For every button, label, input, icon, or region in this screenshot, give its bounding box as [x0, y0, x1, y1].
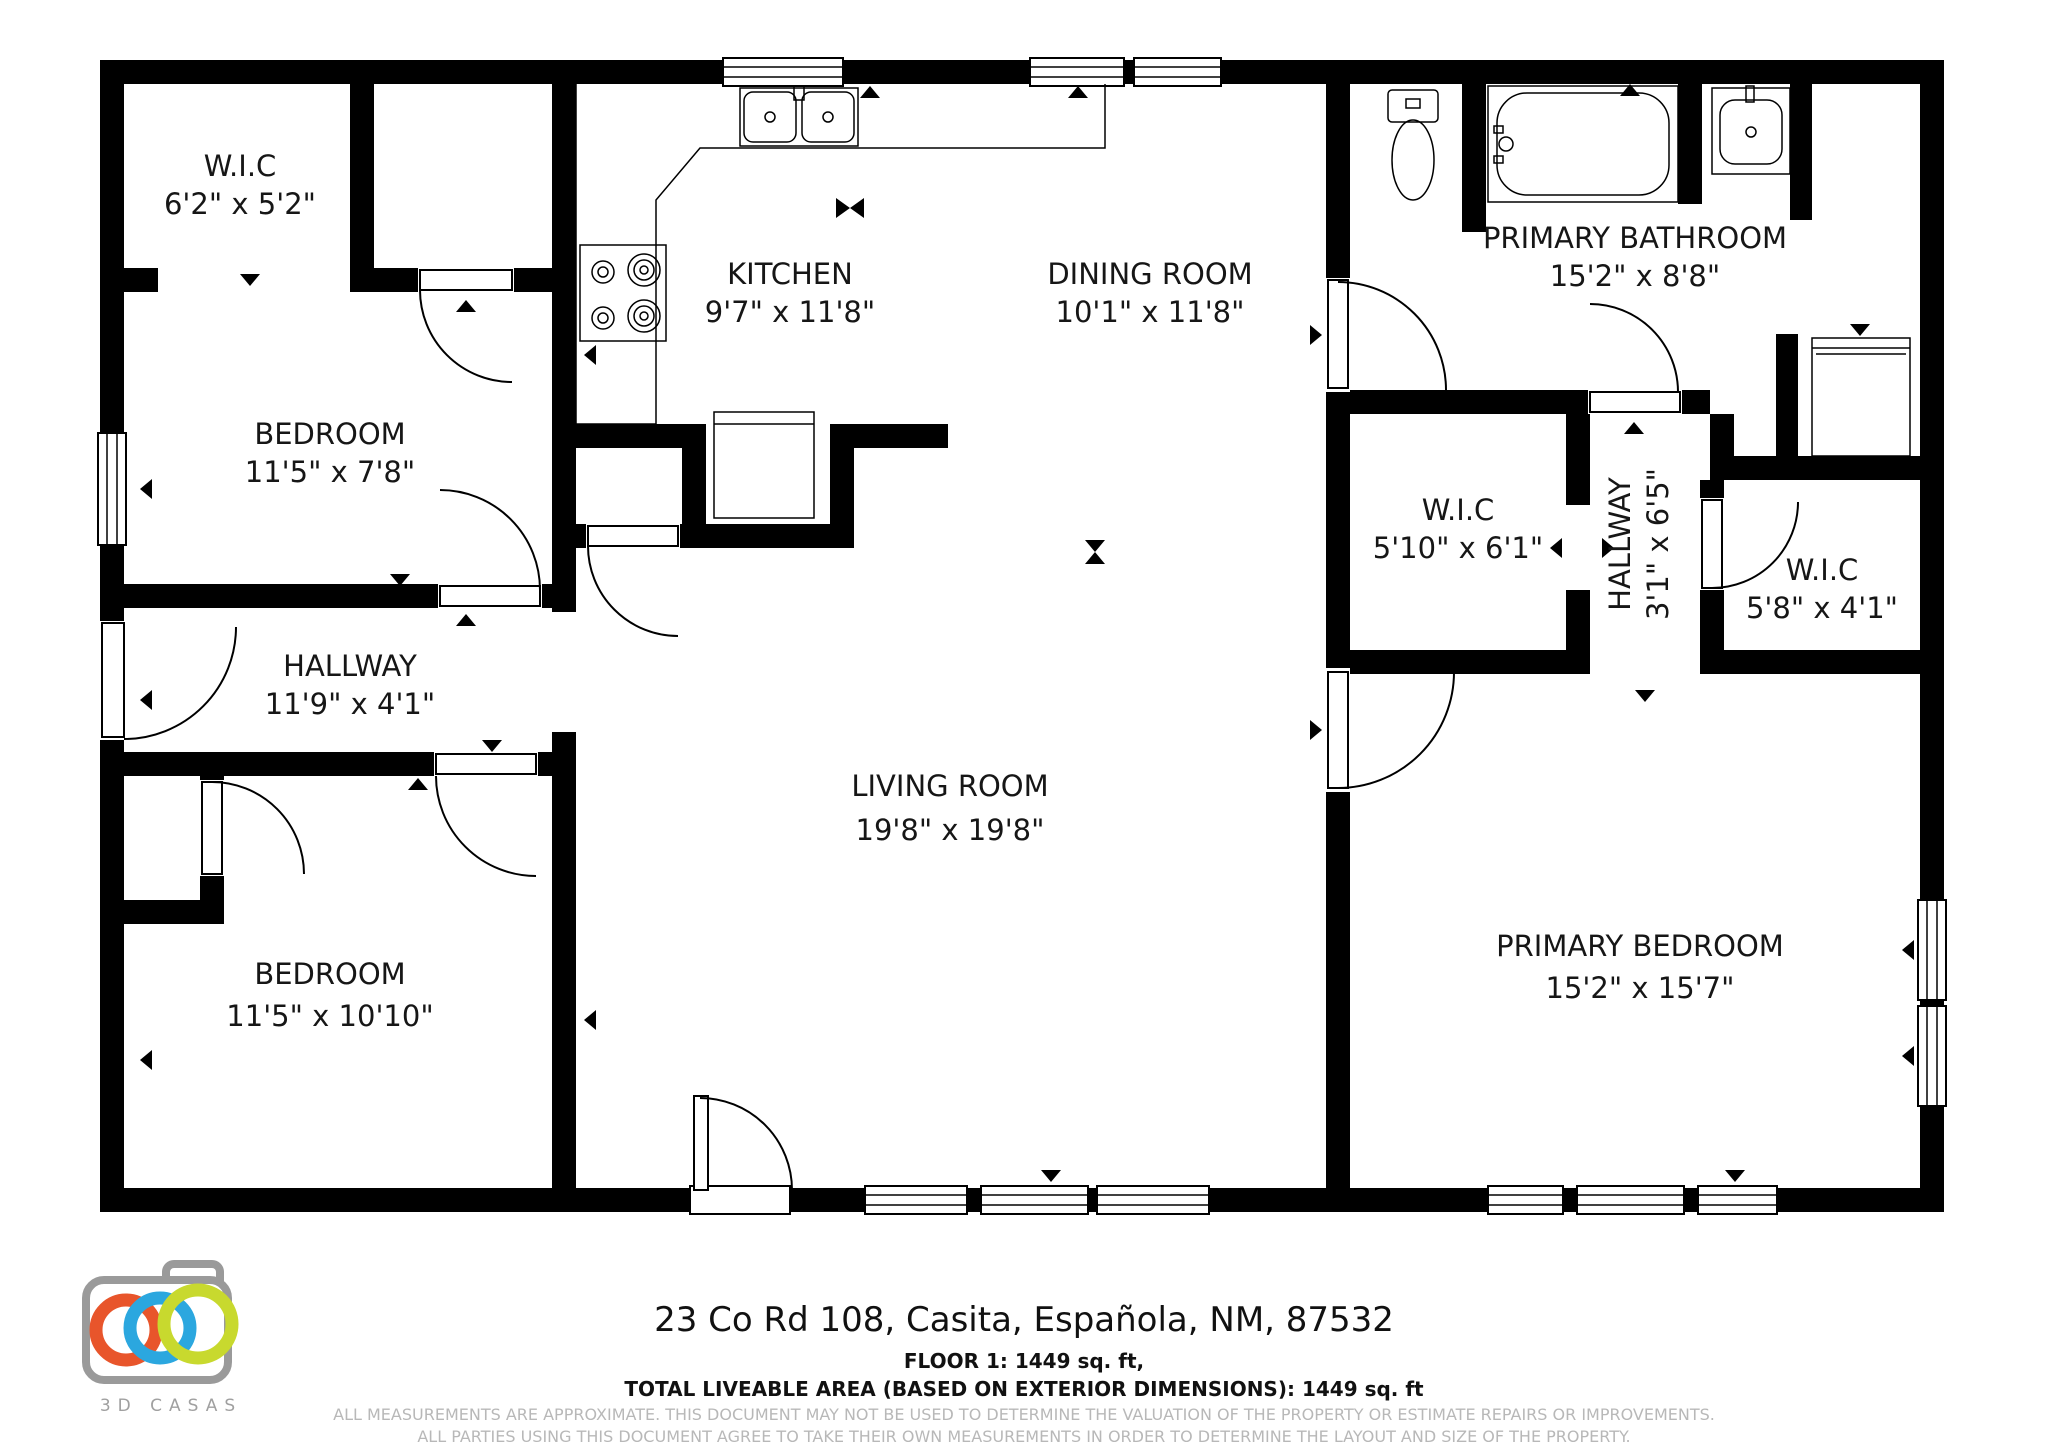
- room-name: W.I.C: [204, 149, 277, 183]
- window: [1134, 58, 1221, 86]
- window: [981, 1186, 1088, 1214]
- room-label-wic-left: W.I.C 6'2" x 5'2": [164, 149, 316, 221]
- window: [1577, 1186, 1684, 1214]
- room-label-kitchen: KITCHEN 9'7" x 11'8": [705, 257, 875, 329]
- triangle-marker: [456, 300, 476, 312]
- door-leaf: [420, 270, 512, 290]
- bathroom-door: [1326, 278, 1446, 392]
- back-door: [690, 1096, 792, 1214]
- room-label-bedroom-top: BEDROOM 11'5" x 7'8": [245, 417, 415, 489]
- wall-segment: [576, 424, 706, 448]
- toilet: [1388, 90, 1438, 200]
- room-name: PRIMARY BEDROOM: [1496, 929, 1784, 963]
- window: [865, 1186, 967, 1214]
- stove: [580, 245, 666, 341]
- room-label-dining-room: DINING ROOM 10'1" x 11'8": [1047, 257, 1252, 329]
- washer: [1812, 338, 1910, 456]
- door-leaf: [102, 623, 124, 737]
- door-swing-arc: [124, 627, 236, 739]
- triangle-marker: [584, 1010, 596, 1030]
- room-dims: 15'2" x 15'7": [1546, 971, 1735, 1005]
- triangle-marker: [1850, 324, 1870, 336]
- bathtub: [1488, 86, 1678, 202]
- disclaimer-line-1: ALL MEASUREMENTS ARE APPROXIMATE. THIS D…: [0, 1405, 2048, 1424]
- room-name: W.I.C: [1786, 553, 1859, 587]
- door-swing-arc: [588, 546, 678, 636]
- wall-segment: [1710, 456, 1920, 480]
- window: [1097, 1186, 1209, 1214]
- door-swing-arc: [1338, 672, 1454, 788]
- room-name: LIVING ROOM: [851, 769, 1048, 803]
- door-swing-arc: [1590, 304, 1678, 392]
- living-room-closet-door: [586, 524, 680, 636]
- door-leaf: [588, 526, 678, 546]
- bedroom2-door: [434, 752, 538, 876]
- room-dims: 11'9" x 4'1": [265, 687, 435, 721]
- door-leaf: [1590, 392, 1680, 412]
- window: [1918, 900, 1946, 1000]
- wall-segment: [552, 84, 576, 612]
- room-dims: 10'1" x 11'8": [1056, 295, 1245, 329]
- primary-bedroom-door: [1326, 668, 1454, 792]
- triangle-marker: [584, 345, 596, 365]
- hourglass-marker: [1085, 540, 1105, 564]
- window: [1698, 1186, 1777, 1214]
- bedroom-door: [438, 490, 542, 608]
- triangle-marker: [1068, 86, 1088, 98]
- door-swing-arc: [700, 1098, 792, 1190]
- triangle-marker: [482, 740, 502, 752]
- triangle-marker: [1041, 1170, 1061, 1182]
- door-leaf: [440, 586, 540, 606]
- wall-segment: [1350, 650, 1590, 674]
- room-name: HALLWAY: [1603, 477, 1637, 611]
- room-dims: 6'2" x 5'2": [164, 187, 316, 221]
- triangle-marker: [408, 778, 428, 790]
- room-label-hallway-small: HALLWAY 3'1" x 6'5": [1603, 468, 1675, 620]
- triangle-marker: [240, 274, 260, 286]
- closet-door: [418, 268, 514, 382]
- bowtie-marker: [836, 198, 864, 218]
- door-leaf: [1328, 672, 1348, 788]
- wall-segment: [350, 84, 374, 292]
- triangle-marker: [1902, 940, 1914, 960]
- window: [1030, 58, 1124, 86]
- front-door: [100, 621, 236, 740]
- window: [723, 58, 843, 86]
- room-dims: 9'7" x 11'8": [705, 295, 875, 329]
- wall-segment: [1678, 84, 1702, 204]
- room-label-bedroom-bottom: BEDROOM 11'5" x 10'10": [226, 957, 433, 1033]
- wic-middle-opening: [1566, 505, 1590, 590]
- room-dims: 11'5" x 10'10": [226, 999, 433, 1033]
- room-dims: 5'10" x 6'1": [1373, 531, 1543, 565]
- room-label-hallway-main: HALLWAY 11'9" x 4'1": [265, 649, 435, 721]
- door-leaf: [1328, 280, 1348, 388]
- door-leaf: [694, 1096, 708, 1190]
- room-label-primary-bathroom: PRIMARY BATHROOM 15'2" x 8'8": [1483, 221, 1787, 293]
- room-name: BEDROOM: [254, 957, 405, 991]
- room-label-living-room: LIVING ROOM 19'8" x 19'8": [851, 769, 1048, 847]
- wall-segment: [1790, 84, 1812, 220]
- room-dims: 5'8" x 4'1": [1746, 591, 1898, 625]
- total-area-line: TOTAL LIVEABLE AREA (BASED ON EXTERIOR D…: [0, 1377, 2048, 1401]
- floor-plan-page: W.I.C 6'2" x 5'2" BEDROOM 11'5" x 7'8" K…: [0, 0, 2048, 1449]
- wall-segment: [1700, 650, 1920, 674]
- wall-segment: [830, 424, 854, 548]
- triangle-marker: [860, 86, 880, 98]
- door-swing-arc: [212, 782, 304, 874]
- room-dims: 15'2" x 8'8": [1550, 259, 1720, 293]
- door-swing-arc: [436, 776, 536, 876]
- kitchen-sink: [740, 86, 858, 146]
- triangle-marker: [1635, 690, 1655, 702]
- door-leaf: [436, 754, 536, 774]
- wall-segment: [124, 268, 158, 292]
- triangle-marker: [1310, 325, 1322, 345]
- wall-segment: [124, 900, 224, 924]
- triangle-marker: [1310, 720, 1322, 740]
- room-name: DINING ROOM: [1047, 257, 1252, 291]
- room-name: BEDROOM: [254, 417, 405, 451]
- bathroom-sink: [1712, 86, 1790, 174]
- door-swing-arc: [1338, 282, 1446, 390]
- wall-segment: [1326, 84, 1350, 1188]
- room-dims: 19'8" x 19'8": [856, 813, 1045, 847]
- bathroom-hallway-door: [1588, 304, 1682, 414]
- window: [1918, 1006, 1946, 1106]
- wall-segment: [1776, 334, 1798, 456]
- room-name: KITCHEN: [727, 257, 853, 291]
- bedroom2-closet-door: [200, 780, 304, 876]
- room-dims: 3'1" x 6'5": [1641, 468, 1675, 620]
- address-line: 23 Co Rd 108, Casita, Española, NM, 8753…: [0, 1300, 2048, 1340]
- wic-right-door: [1700, 498, 1798, 590]
- door-leaf: [1702, 500, 1722, 588]
- triangle-marker: [140, 479, 152, 499]
- disclaimer-line-2: ALL PARTIES USING THIS DOCUMENT AGREE TO…: [0, 1427, 2048, 1446]
- triangle-marker: [1550, 538, 1562, 558]
- triangle-marker: [456, 614, 476, 626]
- window: [98, 433, 126, 545]
- kitchen-counter: [576, 84, 1105, 424]
- triangle-marker: [140, 690, 152, 710]
- window: [1488, 1186, 1563, 1214]
- wall-segment: [100, 60, 1944, 84]
- room-name: PRIMARY BATHROOM: [1483, 221, 1787, 255]
- wall-segment: [854, 424, 948, 448]
- room-label-wic-middle: W.I.C 5'10" x 6'1": [1373, 493, 1543, 565]
- room-dims: 11'5" x 7'8": [245, 455, 415, 489]
- triangle-marker: [1624, 422, 1644, 434]
- room-name: W.I.C: [1422, 493, 1495, 527]
- room-label-primary-bedroom: PRIMARY BEDROOM 15'2" x 15'7": [1496, 929, 1784, 1005]
- pantry-appliance: [714, 412, 814, 518]
- room-label-wic-right: W.I.C 5'8" x 4'1": [1746, 553, 1898, 625]
- room-name: HALLWAY: [283, 649, 417, 683]
- wall-segment: [552, 732, 576, 1188]
- triangle-marker: [1902, 1046, 1914, 1066]
- floor-area-line: FLOOR 1: 1449 sq. ft,: [0, 1349, 2048, 1373]
- door-leaf: [202, 782, 222, 874]
- door-swing-arc: [440, 490, 540, 590]
- wall-segment: [1462, 84, 1486, 232]
- floor-plan-drawing: W.I.C 6'2" x 5'2" BEDROOM 11'5" x 7'8" K…: [0, 0, 2048, 1260]
- triangle-marker: [140, 1050, 152, 1070]
- triangle-marker: [1725, 1170, 1745, 1182]
